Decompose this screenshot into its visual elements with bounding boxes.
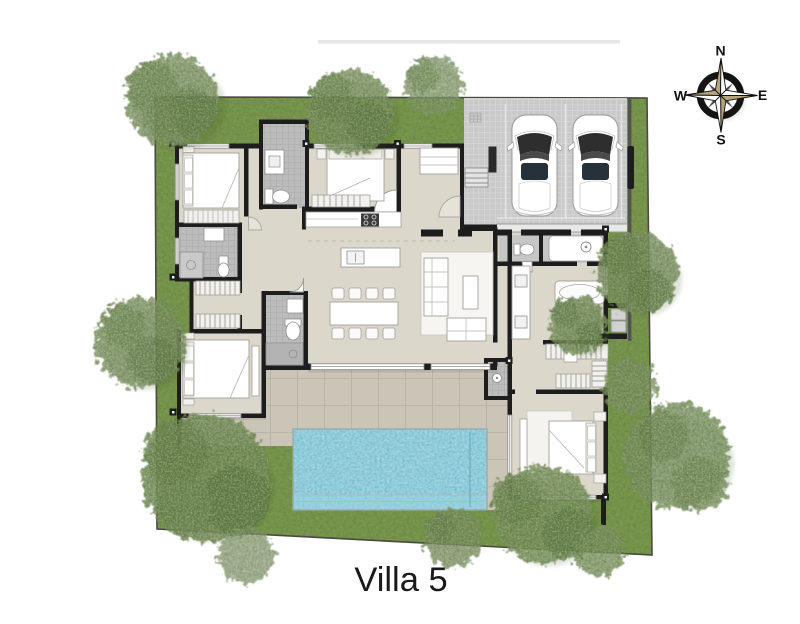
svg-text:S: S [716,132,725,148]
svg-text:W: W [674,88,688,104]
svg-text:E: E [758,87,767,103]
svg-text:N: N [715,43,725,59]
svg-text:Villa 5: Villa 5 [354,561,447,599]
